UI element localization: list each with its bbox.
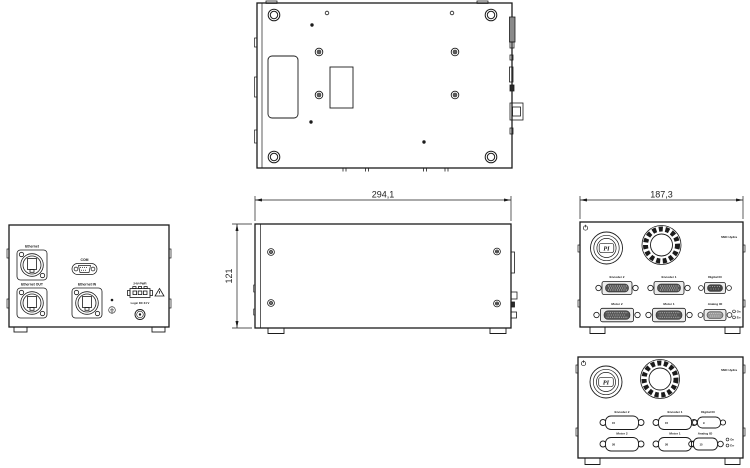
motor2-connector[interactable]: 26 bbox=[600, 438, 644, 452]
pin-count: 26 bbox=[612, 443, 616, 447]
depth-dim-label: 187,3 bbox=[650, 190, 673, 200]
encoder2-connector[interactable] bbox=[596, 282, 638, 295]
vent-hole bbox=[450, 11, 454, 15]
ethercon-connector-ethernet bbox=[17, 250, 47, 280]
pwr-label: 24V-PWR bbox=[133, 282, 147, 286]
side-connector-profiles bbox=[511, 252, 517, 318]
technical-drawing-canvas: Ethernet COM Ethernet OUT Ethernet IN bbox=[0, 0, 750, 468]
indicator-err-label: Err bbox=[737, 316, 741, 320]
encoder2-label: Encoder 2 bbox=[610, 275, 625, 279]
db9-com-connector bbox=[72, 264, 97, 275]
adjust-knob[interactable] bbox=[641, 360, 680, 399]
width-dim-label: 294,1 bbox=[372, 190, 395, 200]
pin-count: 26 bbox=[665, 443, 669, 447]
ethercon-connector-out bbox=[17, 288, 47, 318]
encoder1-label: Encoder 1 bbox=[668, 410, 683, 414]
power-button[interactable]: PI bbox=[590, 366, 622, 398]
rivet bbox=[422, 140, 425, 143]
power-symbol-icon bbox=[581, 360, 585, 365]
logic-voltage-label: Logic DC 24 V bbox=[131, 301, 150, 305]
status-indicators: On Err bbox=[733, 310, 741, 320]
vent-hole bbox=[325, 11, 329, 15]
view-side: 294,1 121 bbox=[220, 185, 530, 340]
view-front-panel-a: 187,3 PI SMC Hydra Encoder 2 Encoder 1 D… bbox=[565, 188, 750, 338]
screw-holes bbox=[315, 48, 459, 99]
rivet bbox=[310, 23, 313, 26]
power-symbol-icon bbox=[583, 225, 587, 230]
indicator-on-label: On bbox=[730, 438, 734, 442]
pi-logo: PI bbox=[603, 379, 610, 386]
front-feet bbox=[585, 458, 740, 465]
warning-triangle-icon bbox=[155, 289, 164, 297]
status-indicators: On Err bbox=[726, 438, 734, 448]
encoder1-connector[interactable]: 15 bbox=[653, 416, 697, 430]
digital-io-connector[interactable]: 9 bbox=[692, 417, 725, 428]
enclosure-outline bbox=[257, 3, 512, 168]
power-terminal-connector bbox=[128, 287, 153, 298]
base-cutout-center bbox=[330, 67, 353, 108]
height-dim-label: 121 bbox=[224, 268, 234, 283]
digital-io-connector[interactable] bbox=[699, 283, 732, 294]
rivet bbox=[309, 120, 312, 123]
pin-count: 15 bbox=[665, 421, 669, 425]
digital-io-label: Digital IO bbox=[708, 275, 722, 279]
motor1-label: Motor 1 bbox=[663, 302, 674, 306]
motor1-label: Motor 1 bbox=[669, 432, 680, 436]
pin-count: 15 bbox=[612, 421, 616, 425]
ground-symbol-icon bbox=[109, 307, 116, 314]
side-screws bbox=[268, 248, 501, 307]
power-button[interactable]: PI bbox=[591, 232, 623, 264]
encoder1-label: Encoder 1 bbox=[662, 275, 677, 279]
view-rear-panel: Ethernet COM Ethernet OUT Ethernet IN bbox=[0, 218, 190, 343]
pi-logo: PI bbox=[603, 245, 610, 252]
foot bbox=[152, 327, 165, 332]
base-cutout-left bbox=[268, 56, 298, 118]
pin-count: 15 bbox=[700, 443, 704, 447]
motor2-connector[interactable] bbox=[594, 308, 640, 322]
rubber-feet bbox=[268, 9, 497, 163]
encoder2-label: Encoder 2 bbox=[615, 410, 630, 414]
front-feet bbox=[590, 327, 740, 334]
analog-io-label: Analog IO bbox=[708, 302, 723, 306]
view-bottom bbox=[250, 0, 530, 178]
analog-io-connector[interactable]: 15 bbox=[689, 438, 724, 450]
ethernet-out-label: Ethernet OUT bbox=[21, 283, 44, 287]
motor1-connector[interactable]: 26 bbox=[653, 438, 697, 452]
encoder1-connector[interactable] bbox=[648, 282, 690, 295]
side-outline bbox=[255, 224, 511, 328]
analog-io-connector[interactable] bbox=[698, 310, 732, 321]
motor2-label: Motor 2 bbox=[616, 432, 627, 436]
foot bbox=[14, 327, 27, 332]
adjust-knob[interactable] bbox=[642, 226, 681, 265]
model-label: SMC Hydra bbox=[721, 235, 737, 239]
dimension-height: 121 bbox=[224, 224, 252, 328]
analog-io-label: Analog IO bbox=[698, 432, 713, 436]
motor1-connector[interactable] bbox=[646, 308, 692, 322]
dimension-width: 294,1 bbox=[255, 190, 511, 222]
encoder2-connector[interactable]: 15 bbox=[600, 416, 644, 430]
indicator-on-label: On bbox=[737, 310, 741, 314]
view-front-panel-b: PI SMC Hydra Encoder 2 Encoder 1 Digital… bbox=[565, 352, 750, 468]
side-feet bbox=[268, 328, 506, 334]
dc-jack-connector bbox=[135, 310, 145, 320]
ethercon-connector-in bbox=[72, 288, 102, 318]
motor2-label: Motor 2 bbox=[611, 302, 622, 306]
indicator-err-label: Err bbox=[730, 444, 734, 448]
ethernet-label: Ethernet bbox=[25, 245, 40, 249]
ethernet-in-label: Ethernet IN bbox=[78, 283, 97, 287]
model-label: SMC Hydra bbox=[721, 368, 737, 372]
digital-io-label: Digital IO bbox=[701, 410, 715, 414]
com-label: COM bbox=[81, 258, 89, 262]
dimension-depth: 187,3 bbox=[580, 190, 743, 220]
ground-dot bbox=[111, 299, 114, 302]
